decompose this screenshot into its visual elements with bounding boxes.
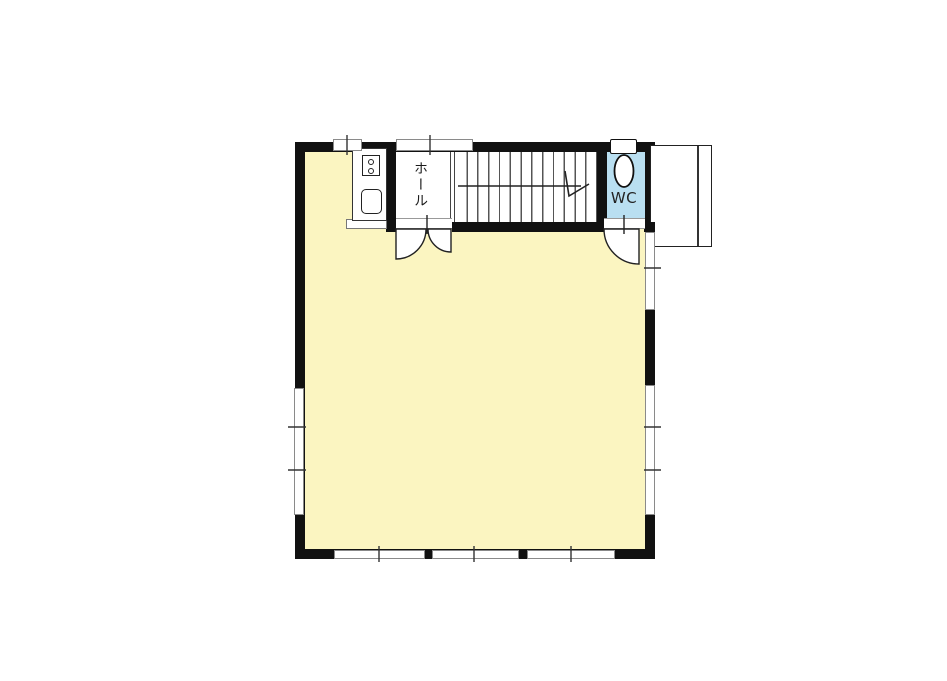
stair-direction-arrow bbox=[565, 171, 589, 196]
toilet-icon bbox=[615, 155, 634, 187]
floor-plan-canvas: ホール WC bbox=[0, 0, 947, 681]
plan-vector-overlay bbox=[0, 0, 947, 681]
wc-door-leaf bbox=[604, 229, 639, 264]
hall-door-right-leaf bbox=[428, 229, 451, 252]
hall-label: ホール bbox=[413, 161, 427, 221]
wc-label: WC bbox=[603, 189, 645, 207]
hall-door-left-leaf bbox=[396, 229, 426, 259]
